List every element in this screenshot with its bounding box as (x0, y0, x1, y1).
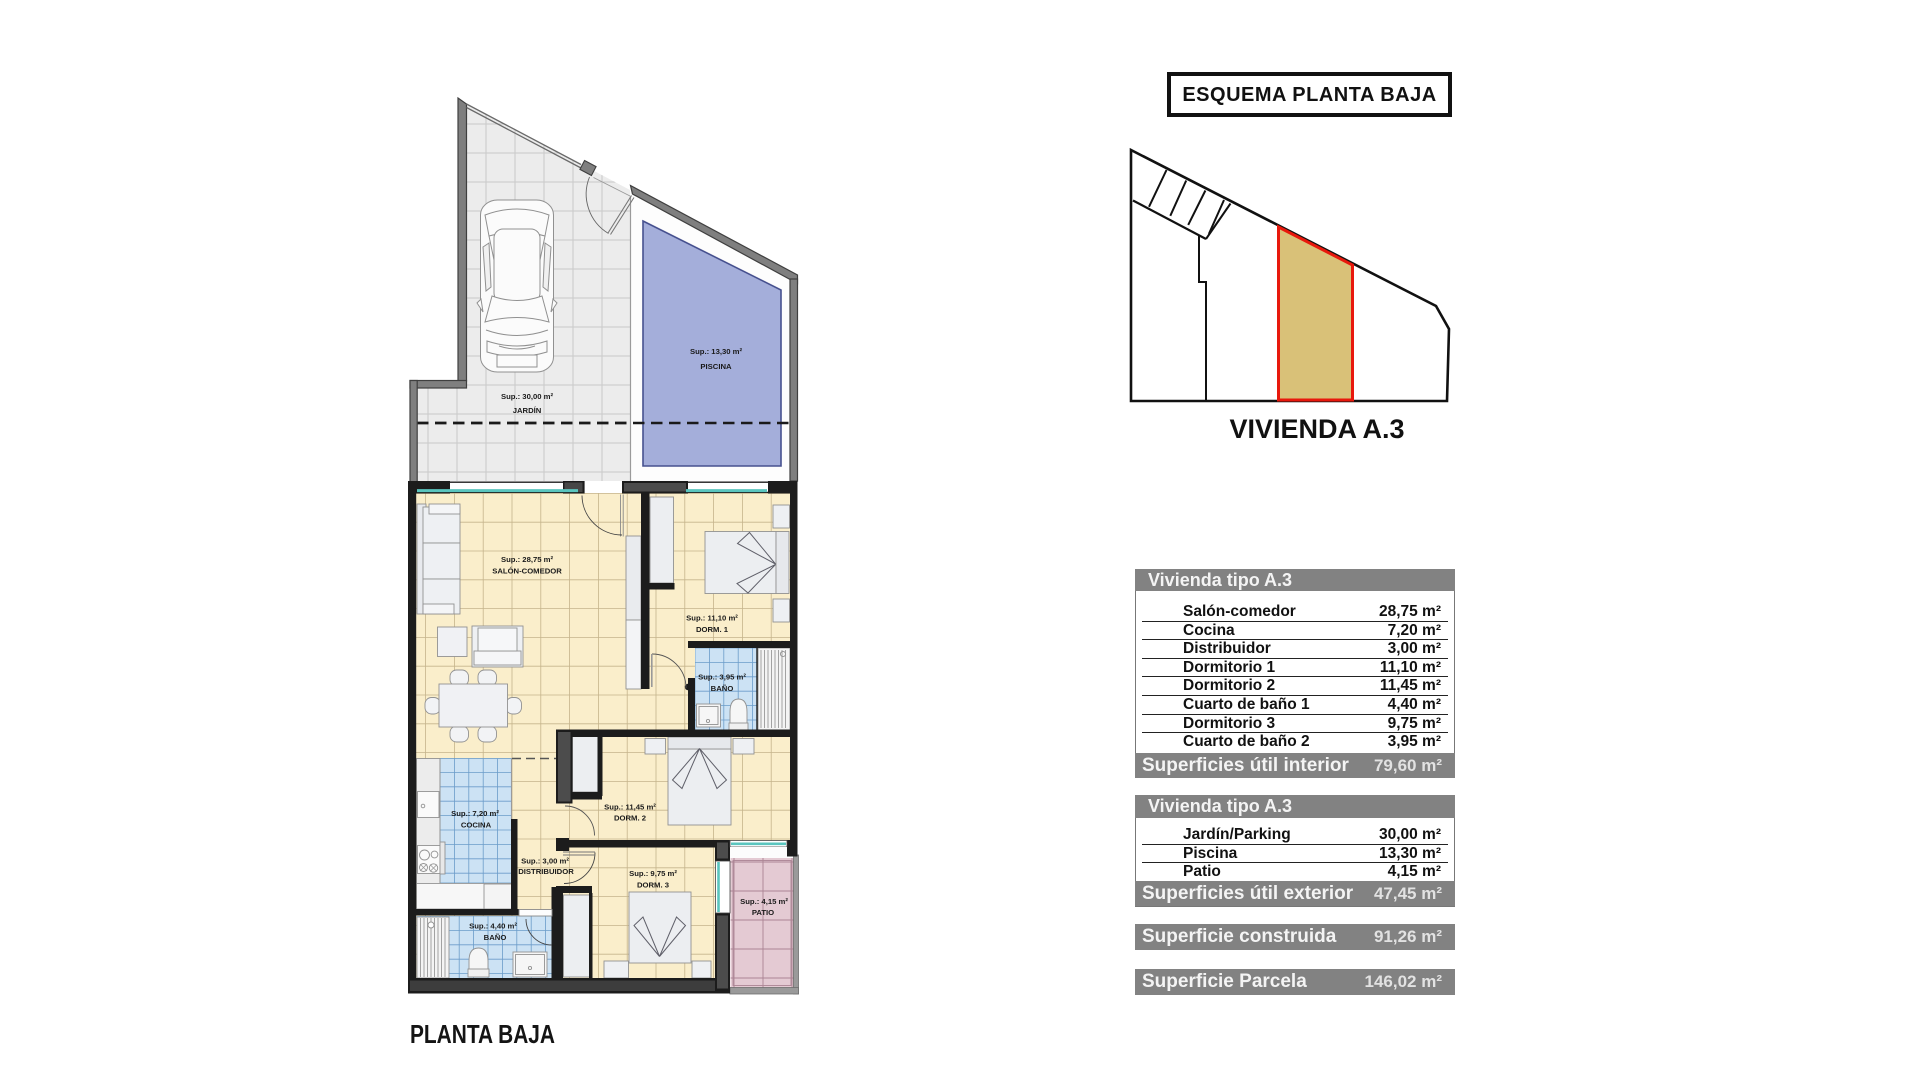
svg-text:Sup.: 28,75 m²: Sup.: 28,75 m² (501, 555, 554, 564)
svg-text:DORM. 2: DORM. 2 (614, 814, 646, 823)
svg-text:PISCINA: PISCINA (700, 362, 732, 371)
svg-text:Sup.: 11,10 m²: Sup.: 11,10 m² (686, 614, 738, 623)
svg-text:SALÓN-COMEDOR: SALÓN-COMEDOR (492, 567, 562, 576)
svg-text:Sup.: 4,40 m²: Sup.: 4,40 m² (469, 922, 517, 931)
svg-text:DISTRIBUIDOR: DISTRIBUIDOR (518, 867, 574, 876)
svg-text:PATIO: PATIO (752, 908, 774, 917)
svg-text:BAÑO: BAÑO (711, 684, 734, 693)
svg-text:Sup.: 9,75 m²: Sup.: 9,75 m² (629, 869, 677, 878)
svg-text:Sup.: 4,15 m²: Sup.: 4,15 m² (740, 897, 788, 906)
svg-text:Sup.: 3,95 m²: Sup.: 3,95 m² (698, 673, 746, 682)
svg-text:BAÑO: BAÑO (484, 933, 507, 942)
svg-text:JARDÍN: JARDÍN (513, 406, 542, 415)
svg-text:PLANTA BAJA: PLANTA BAJA (410, 1019, 555, 1049)
svg-text:COCINA: COCINA (461, 821, 492, 830)
svg-text:DORM. 3: DORM. 3 (637, 881, 669, 890)
svg-text:Sup.: 30,00 m²: Sup.: 30,00 m² (501, 392, 554, 401)
svg-text:Sup.: 13,30 m²: Sup.: 13,30 m² (690, 347, 743, 356)
svg-text:Sup.: 11,45 m²: Sup.: 11,45 m² (604, 803, 656, 812)
svg-text:Sup.: 7,20 m²: Sup.: 7,20 m² (451, 809, 499, 818)
svg-text:DORM. 1: DORM. 1 (696, 625, 729, 634)
svg-text:Sup.: 3,00 m²: Sup.: 3,00 m² (521, 857, 569, 866)
